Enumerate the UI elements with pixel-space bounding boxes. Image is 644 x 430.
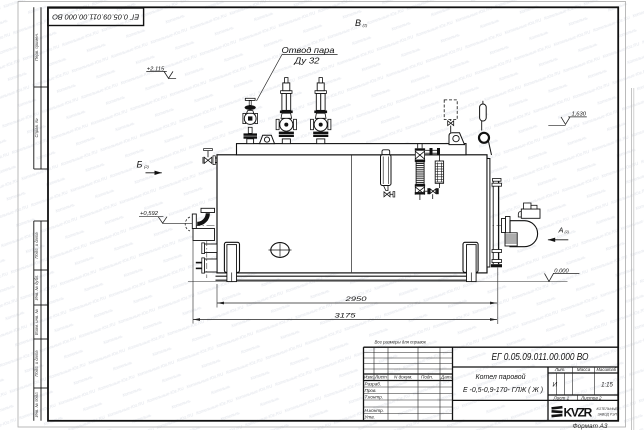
- svg-text:(2): (2): [144, 164, 150, 169]
- svg-text:Лит.: Лит.: [554, 367, 566, 372]
- svg-text:Подп. и дата: Подп. и дата: [34, 232, 39, 259]
- svg-text:3175: 3175: [335, 312, 356, 319]
- svg-text:Перв. примен.: Перв. примен.: [34, 33, 39, 61]
- svg-text:В: В: [355, 18, 361, 28]
- svg-text:Справ. №: Справ. №: [34, 118, 39, 137]
- svg-text:Дата: Дата: [440, 375, 454, 380]
- svg-text:(2): (2): [363, 23, 369, 28]
- svg-text:Взам. инв. №: Взам. инв. №: [34, 309, 39, 335]
- svg-text:Котел паровой: Котел паровой: [476, 372, 527, 381]
- svg-text:1:15: 1:15: [601, 383, 613, 389]
- svg-text:Ду 32: Ду 32: [293, 56, 319, 66]
- svg-text:Подп. и дата: Подп. и дата: [34, 350, 39, 377]
- svg-text:Все размеры для справок: Все размеры для справок: [375, 340, 427, 345]
- svg-text:КОТЕЛЬНЫЙ: КОТЕЛЬНЫЙ: [597, 407, 619, 411]
- svg-text:Лист: Лист: [374, 375, 387, 380]
- svg-text:2950: 2950: [344, 296, 367, 303]
- svg-text:Инв. № подл.: Инв. № подл.: [34, 391, 39, 417]
- svg-text:Пров.: Пров.: [365, 388, 377, 393]
- svg-text:ЗАВОД РЭП: ЗАВОД РЭП: [598, 413, 618, 417]
- svg-text:Листов 2: Листов 2: [580, 396, 602, 401]
- svg-text:Т.контр.: Т.контр.: [365, 395, 384, 400]
- svg-text:(2): (2): [565, 230, 569, 234]
- svg-text:И: И: [553, 382, 558, 389]
- svg-text:А: А: [558, 226, 564, 235]
- svg-text:Лист 1: Лист 1: [553, 396, 570, 401]
- svg-text:N докум.: N докум.: [394, 375, 413, 380]
- svg-text:Разраб.: Разраб.: [365, 382, 382, 387]
- svg-text:Е -0,5-0,9-170- ГЛЖ ( Ж ): Е -0,5-0,9-170- ГЛЖ ( Ж ): [463, 385, 543, 394]
- svg-text:Формат А3: Формат А3: [573, 423, 608, 430]
- svg-text:Б: Б: [137, 160, 143, 170]
- svg-text:Инв. № дубл.: Инв. № дубл.: [34, 275, 39, 301]
- svg-text:Подп.: Подп.: [421, 375, 433, 380]
- svg-text:Масштаб: Масштаб: [597, 367, 617, 372]
- svg-text:+0,592: +0,592: [140, 211, 159, 217]
- svg-text:Масса: Масса: [577, 367, 591, 372]
- svg-text:Изм.: Изм.: [364, 375, 374, 380]
- svg-text:Утв.: Утв.: [365, 414, 375, 419]
- svg-text:Н.контр.: Н.контр.: [365, 408, 384, 413]
- svg-text:Отвод пара: Отвод пара: [282, 45, 335, 55]
- svg-text:ЕГ 0.05.09.011.00.000 ВО: ЕГ 0.05.09.011.00.000 ВО: [492, 352, 589, 363]
- svg-text:ЕГ 0.05.09.011.00.000 ВО: ЕГ 0.05.09.011.00.000 ВО: [52, 13, 139, 22]
- svg-text:KVZR: KVZR: [564, 406, 593, 420]
